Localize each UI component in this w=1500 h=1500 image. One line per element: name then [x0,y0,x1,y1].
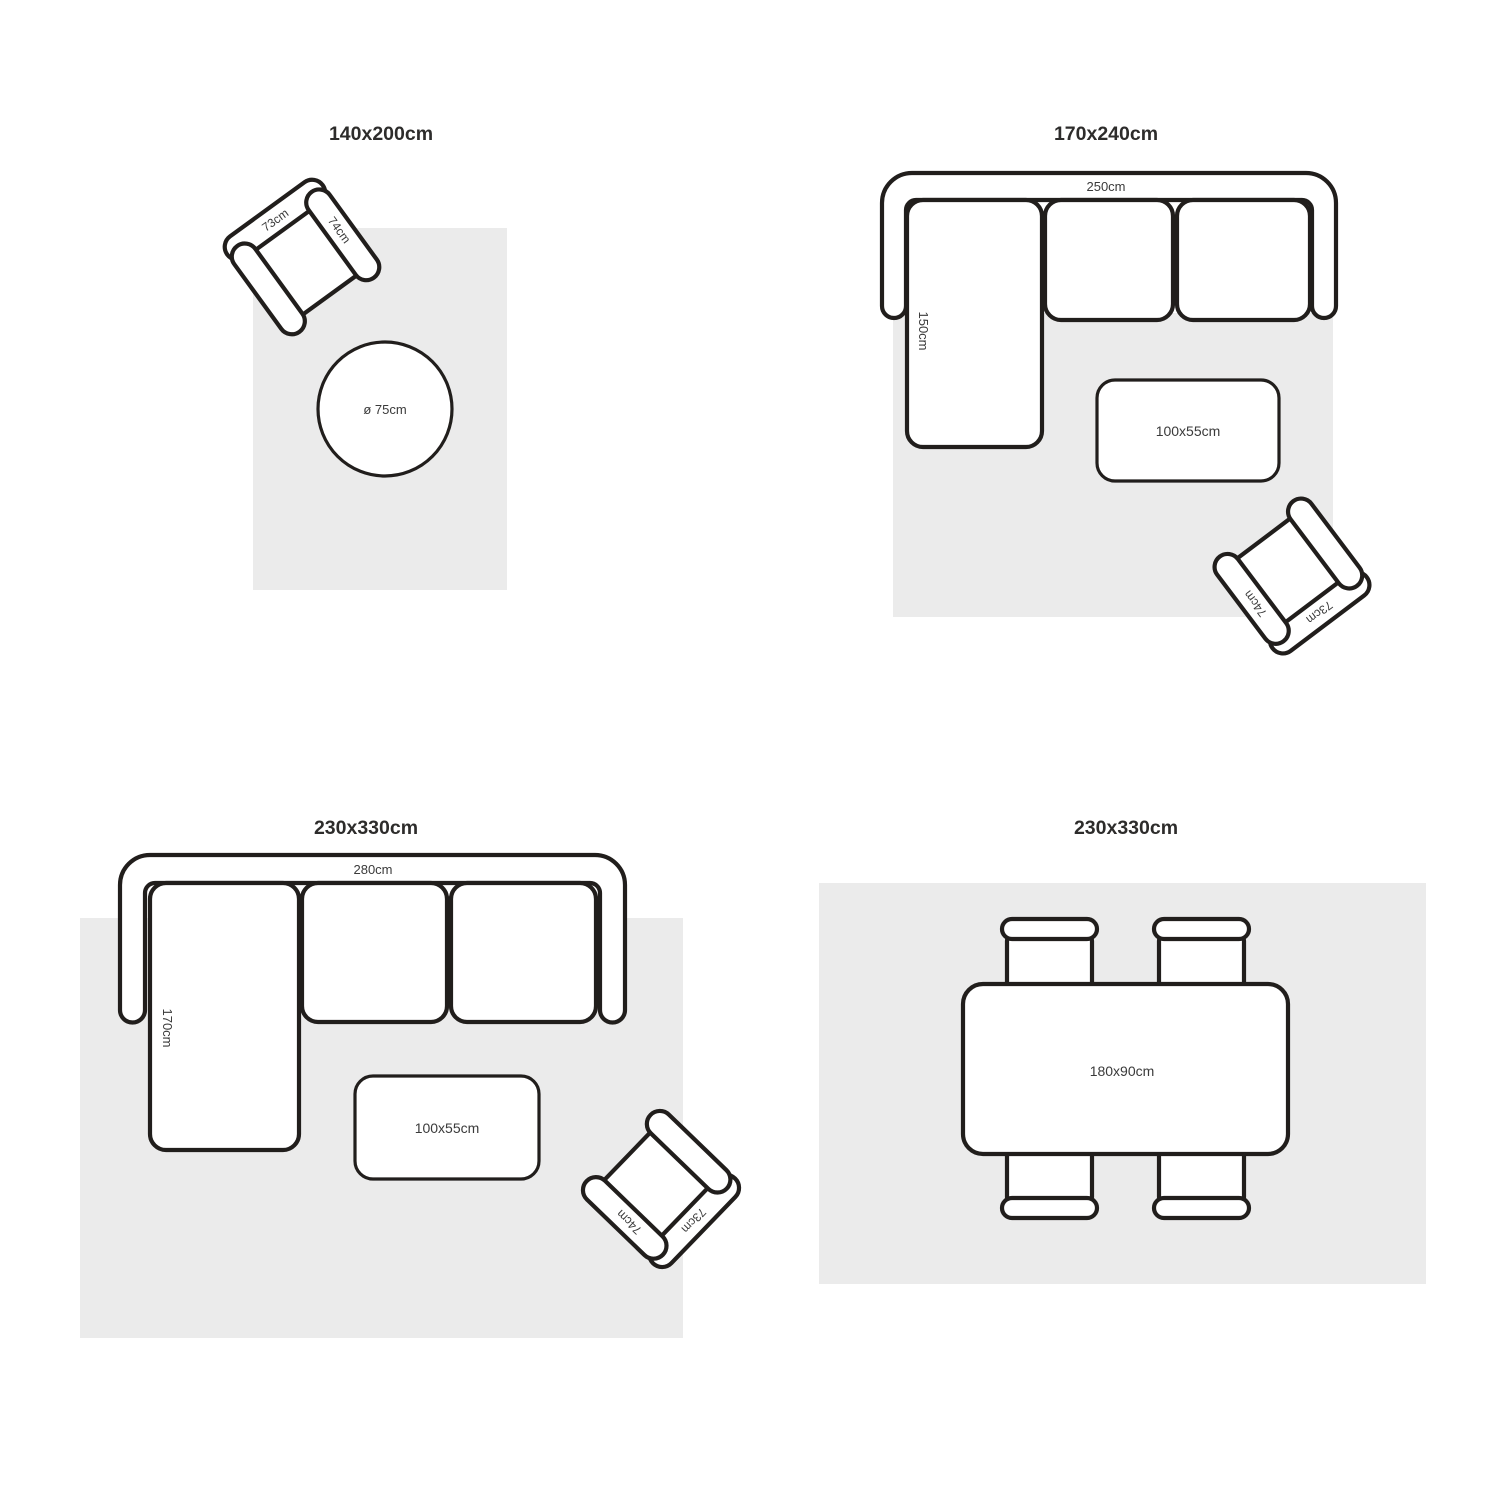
rug-size-guide-svg: 140x200cm 73cm 74cm ø 75cm 170x240cm 250… [0,0,1500,1500]
rug-size-title: 230x330cm [314,817,418,839]
dining-chair-back [1002,1198,1097,1218]
rug-size-guide: 140x200cm 73cm 74cm ø 75cm 170x240cm 250… [0,0,1500,1500]
dining-chair-back [1154,1198,1249,1218]
round-side-table-dimension: ø 75cm [363,402,406,417]
dining-chair-seat [1159,936,1244,988]
sofa-depth-dimension: 170cm [160,1008,175,1047]
rug-size-title: 170x240cm [1054,123,1158,145]
dining-chair-back [1154,919,1249,939]
dining-chair-seat [1007,1150,1092,1202]
layout-bottom-left: 230x330cm 280cm 170cm 100x55cm 73cm 74cm [80,817,744,1338]
dining-chair [1002,1150,1097,1218]
layout-top-left: 140x200cm 73cm 74cm ø 75cm [220,123,507,590]
coffee-table-dimension: 100x55cm [1156,423,1221,439]
rug-size-title: 140x200cm [329,123,433,145]
sofa-cushion [451,883,596,1022]
dining-chair [1154,919,1249,988]
sofa-cushion [1045,200,1173,320]
dining-chair-seat [1007,936,1092,988]
dining-table-dimension: 180x90cm [1090,1063,1155,1079]
dining-chair [1002,919,1097,988]
sofa-cushion [302,883,447,1022]
sofa-width-dimension: 280cm [353,862,392,877]
sofa-width-dimension: 250cm [1086,179,1125,194]
layout-top-right: 170x240cm 250cm 150cm 100x55cm 73cm 74cm [882,123,1375,659]
rug-size-title: 230x330cm [1074,817,1178,839]
dining-chair-back [1002,919,1097,939]
sofa-cushion [1177,200,1310,320]
dining-chair [1154,1150,1249,1218]
sofa-depth-dimension: 150cm [916,311,931,350]
coffee-table-dimension: 100x55cm [415,1120,480,1136]
layout-bottom-right: 230x330cm 180x90cm [819,817,1426,1284]
dining-chair-seat [1159,1150,1244,1202]
